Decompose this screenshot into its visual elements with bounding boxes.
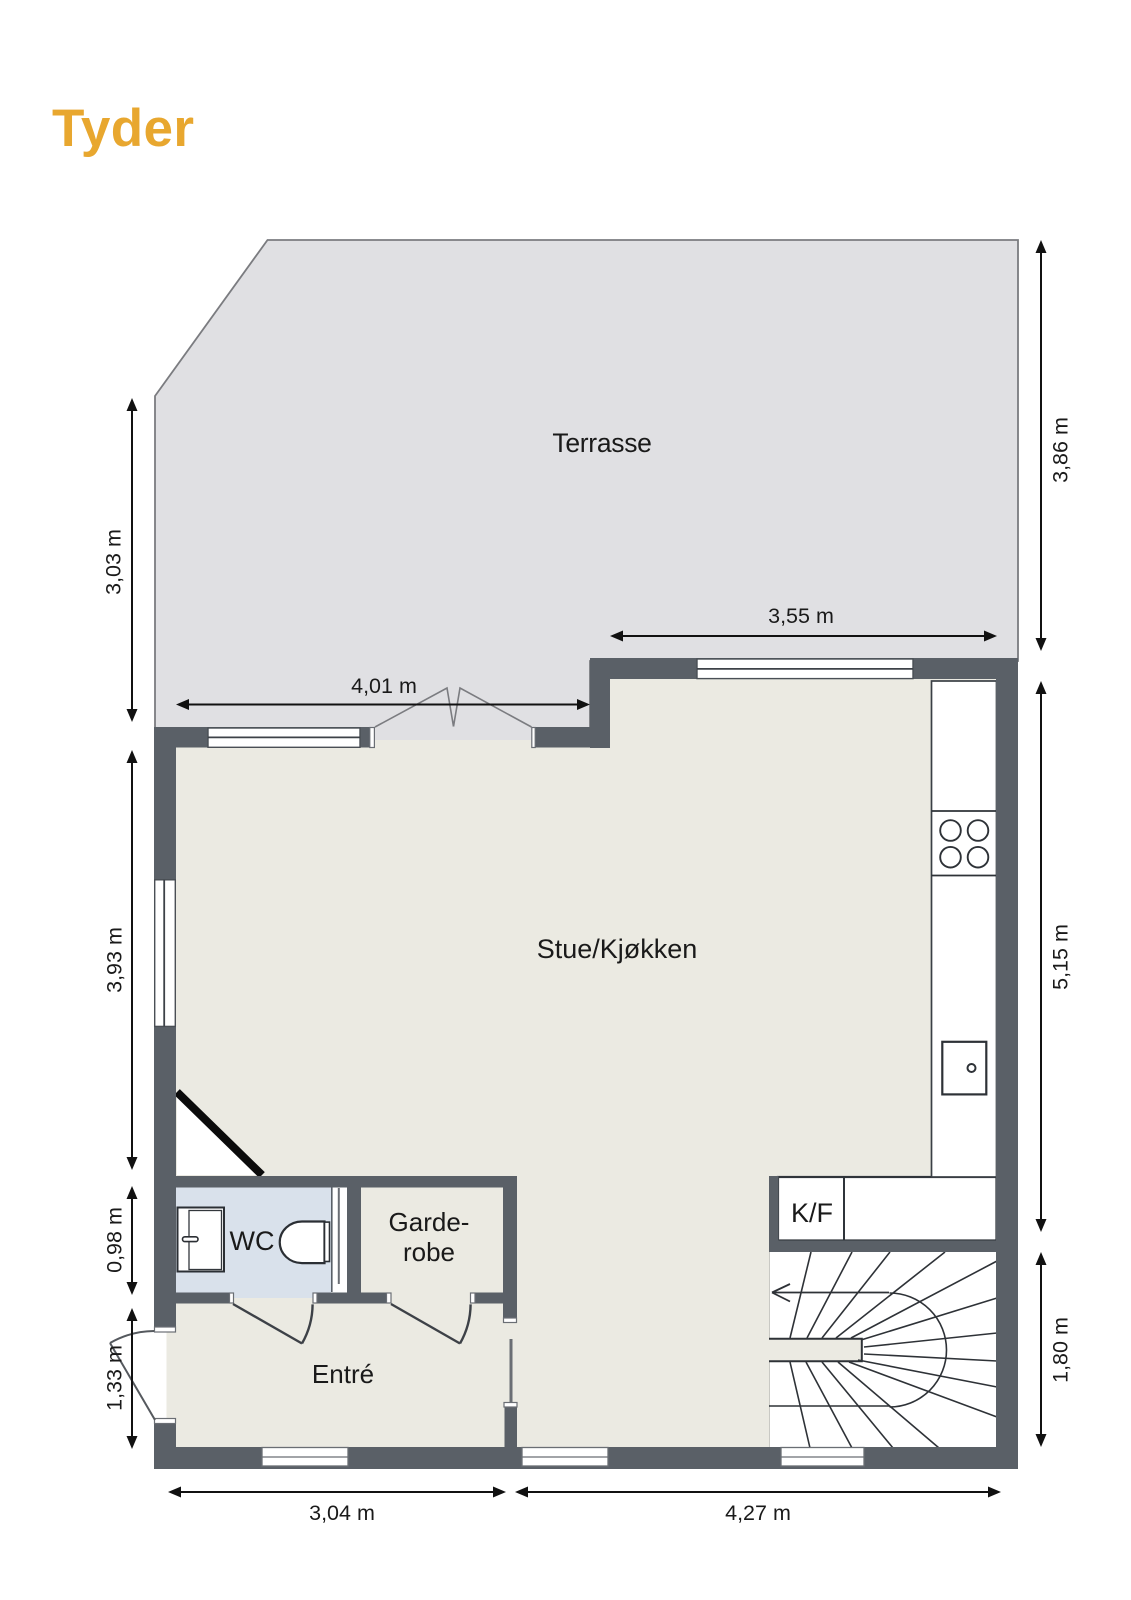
svg-text:3,93 m: 3,93 m	[103, 927, 127, 993]
svg-text:Garde-: Garde-	[389, 1207, 470, 1237]
svg-text:5,15 m: 5,15 m	[1049, 924, 1073, 990]
svg-text:1,80 m: 1,80 m	[1049, 1317, 1073, 1383]
svg-text:3,03 m: 3,03 m	[102, 529, 126, 595]
svg-text:4,27 m: 4,27 m	[725, 1501, 791, 1525]
svg-text:3,86 m: 3,86 m	[1049, 417, 1073, 483]
svg-text:3,55 m: 3,55 m	[768, 604, 834, 628]
svg-text:robe: robe	[403, 1237, 455, 1267]
svg-text:4,01 m: 4,01 m	[351, 674, 417, 698]
svg-text:WC: WC	[230, 1226, 275, 1256]
svg-text:Terrasse: Terrasse	[552, 428, 651, 458]
svg-text:Entré: Entré	[312, 1359, 374, 1389]
svg-text:0,98 m: 0,98 m	[103, 1207, 127, 1273]
svg-text:3,04 m: 3,04 m	[309, 1501, 375, 1525]
svg-text:Stue/Kjøkken: Stue/Kjøkken	[537, 934, 698, 964]
svg-text:1,33 m: 1,33 m	[103, 1345, 127, 1411]
svg-text:K/F: K/F	[791, 1198, 833, 1228]
svg-text:Tyder: Tyder	[52, 99, 194, 158]
